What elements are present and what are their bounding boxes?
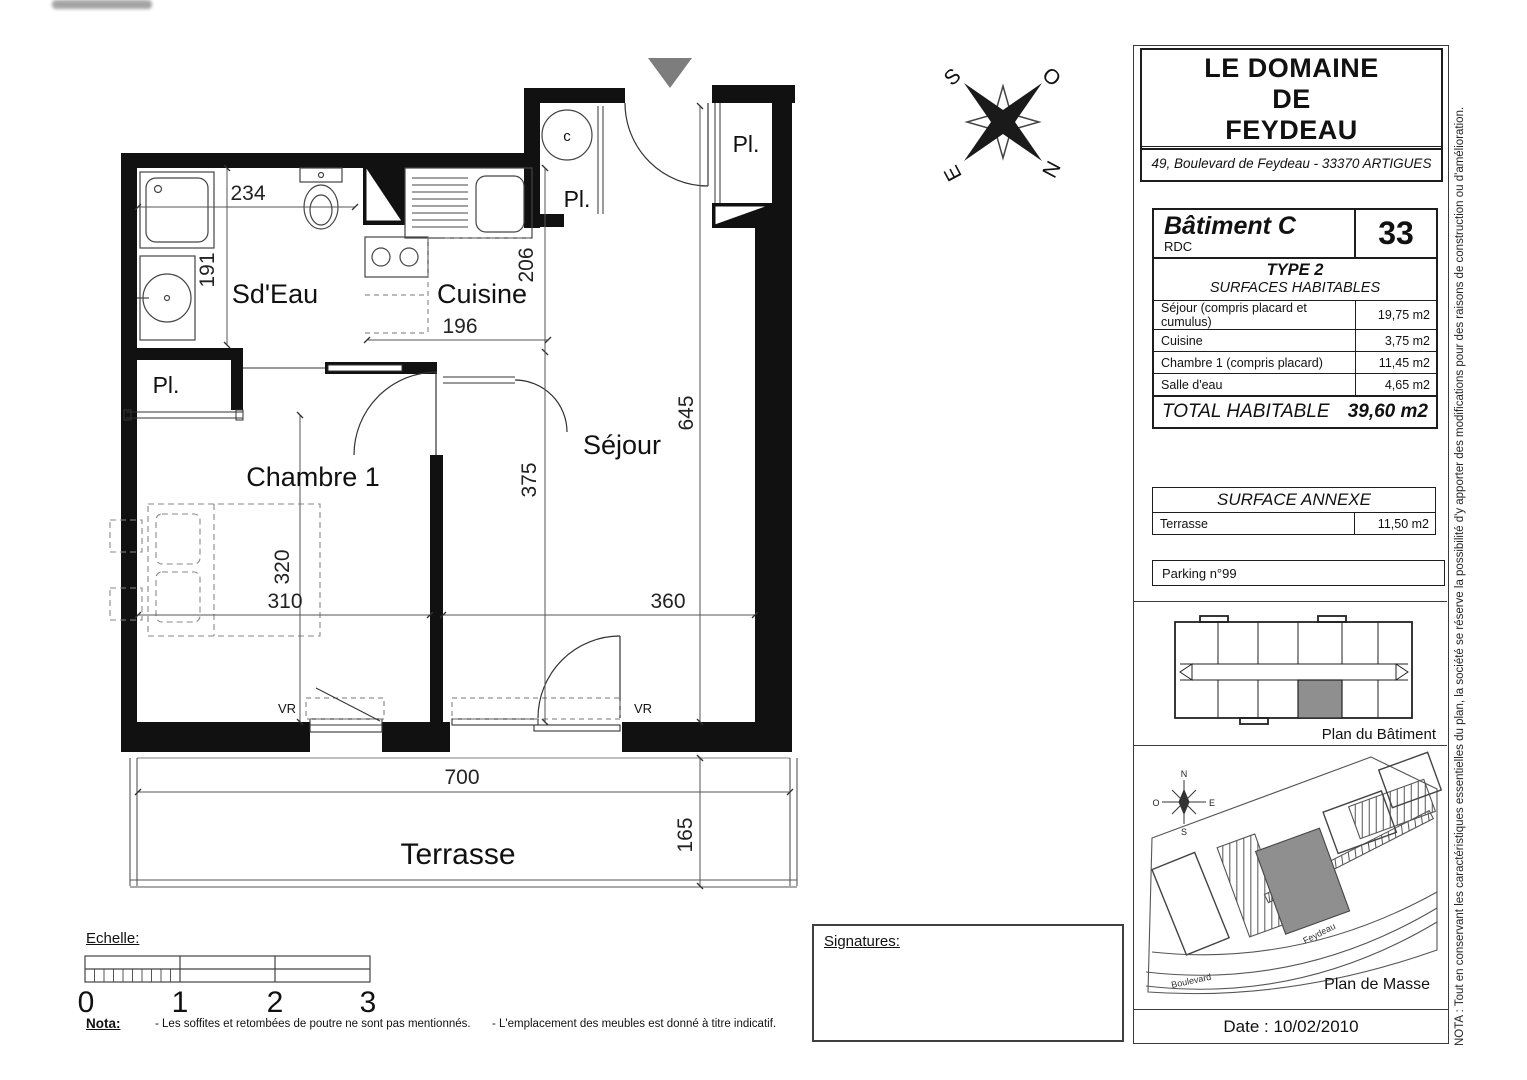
dim-360: 360 [650, 590, 685, 613]
compass-rose-icon: S O E N [940, 63, 1065, 184]
compass-n: N [1037, 157, 1064, 181]
surface-row-label: Cuisine [1154, 334, 1355, 348]
room-label-cuisine: Cuisine [437, 279, 527, 309]
scale-0: 0 [78, 986, 95, 1019]
date-label: Date : 10/02/2010 [1133, 1009, 1449, 1044]
total-label: TOTAL HABITABLE [1154, 401, 1348, 423]
table-row: Salle d'eau 4,65 m2 [1154, 373, 1436, 395]
type-label: TYPE 2 [1154, 261, 1436, 280]
plan-masse-caption: Plan de Masse [1240, 976, 1430, 994]
side-note: NOTA : Tout en conservant les caractéris… [1454, 56, 1466, 1046]
compass-o: O [1038, 63, 1066, 91]
table-row: Terrasse 11,50 m2 [1153, 512, 1435, 534]
echelle-label: Echelle: [86, 930, 139, 947]
closet-label-hall: Pl. [564, 186, 591, 212]
dim-700: 700 [444, 766, 479, 789]
lot-number: 33 [1354, 210, 1436, 257]
title-block-border [1133, 45, 1449, 1044]
surface-row-value: 11,45 m2 [1355, 352, 1436, 373]
parking-label: Parking n°99 [1152, 560, 1445, 586]
project-title-line2: DE [1142, 84, 1441, 115]
vr-label-1: VR [278, 701, 296, 716]
surface-row-label: Salle d'eau [1154, 378, 1355, 392]
compass-e: E [940, 161, 967, 184]
column-separator-1 [1133, 601, 1447, 602]
annexe-row-value: 11,50 m2 [1354, 513, 1435, 534]
project-title-line1: LE DOMAINE [1142, 53, 1441, 84]
vr-label-2: VR [634, 701, 652, 716]
windows [310, 719, 620, 732]
nota-label: Nota: [86, 1016, 121, 1031]
compass-s: S [940, 64, 966, 90]
project-title: LE DOMAINE DE FEYDEAU [1140, 48, 1443, 150]
surface-row-label: Chambre 1 (compris placard) [1154, 356, 1355, 370]
dim-320: 320 [271, 549, 294, 584]
surface-row-value: 19,75 m2 [1355, 301, 1436, 329]
project-title-line3: FEYDEAU [1142, 115, 1441, 146]
table-row: Cuisine 3,75 m2 [1154, 329, 1436, 351]
scale-1: 1 [172, 986, 189, 1019]
total-value: 39,60 m2 [1348, 401, 1436, 423]
building-floor: RDC [1164, 239, 1354, 254]
vr-shutters [306, 688, 620, 721]
room-label-sdeau: Sd'Eau [232, 279, 318, 309]
scale-3: 3 [360, 986, 377, 1019]
dim-206: 206 [515, 247, 538, 282]
nota-item-1: - Les soffites et retombées de poutre ne… [155, 1018, 471, 1030]
entrance-marker-icon [648, 58, 692, 88]
dim-234: 234 [230, 182, 265, 205]
dim-375: 375 [518, 462, 541, 497]
project-address: 49, Boulevard de Feydeau - 33370 ARTIGUE… [1140, 146, 1443, 182]
scale-2: 2 [267, 986, 284, 1019]
entrance [625, 103, 720, 203]
room-label-sejour: Séjour [583, 430, 661, 460]
nota-item-2: - L'emplacement des meubles est donné à … [492, 1018, 776, 1030]
plan-sheet: Sd'Eau Cuisine Chambre 1 Séjour Terrasse… [0, 0, 1527, 1080]
cumulus-label: c [563, 128, 571, 145]
surface-row-value: 3,75 m2 [1355, 330, 1436, 351]
dim-196: 196 [442, 315, 477, 338]
dim-310: 310 [267, 590, 302, 613]
surface-row-value: 4,65 m2 [1355, 374, 1436, 395]
plan-batiment-caption: Plan du Bâtiment [1240, 726, 1436, 743]
closet-label-entry: Pl. [733, 131, 760, 157]
building-name: Bâtiment C [1164, 213, 1354, 239]
dim-645: 645 [675, 395, 698, 430]
column-separator-2 [1133, 745, 1447, 746]
annexe-row-label: Terrasse [1153, 517, 1354, 531]
total-row: TOTAL HABITABLE 39,60 m2 [1154, 395, 1436, 427]
scale-bar [85, 956, 370, 982]
signatures-box: Signatures: [812, 924, 1124, 1042]
closet-label-left: Pl. [153, 372, 180, 398]
surface-row-label: Séjour (compris placard et cumulus) [1154, 301, 1355, 329]
annexe-header: SURFACE ANNEXE [1153, 488, 1435, 512]
table-row: Séjour (compris placard et cumulus) 19,7… [1154, 300, 1436, 329]
signatures-label: Signatures: [814, 926, 1122, 950]
room-label-terrasse: Terrasse [400, 838, 515, 871]
type-row: TYPE 2 SURFACES HABITABLES [1154, 257, 1436, 300]
surfaces-table-header: Bâtiment C RDC 33 [1154, 210, 1436, 257]
dim-165: 165 [674, 817, 697, 852]
dim-191: 191 [196, 252, 219, 287]
annexe-table: SURFACE ANNEXE Terrasse 11,50 m2 [1152, 487, 1436, 535]
room-label-chambre: Chambre 1 [246, 462, 380, 492]
surfaces-header-label: SURFACES HABITABLES [1154, 280, 1436, 297]
surfaces-table: Bâtiment C RDC 33 TYPE 2 SURFACES HABITA… [1152, 208, 1438, 429]
table-row: Chambre 1 (compris placard) 11,45 m2 [1154, 351, 1436, 373]
